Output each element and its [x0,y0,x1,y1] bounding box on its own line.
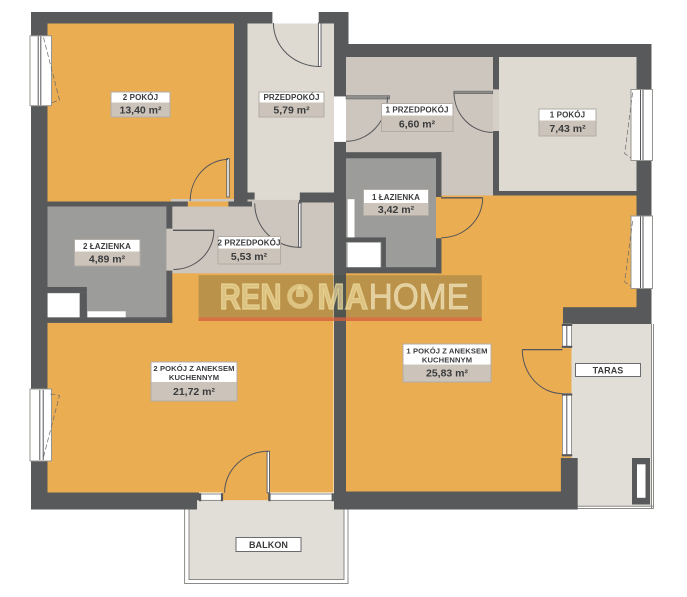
svg-text:TARAS: TARAS [593,366,624,376]
svg-text:BALKON: BALKON [249,540,288,550]
svg-text:2 ŁAZIENKA: 2 ŁAZIENKA [83,242,131,251]
svg-text:1 POKÓJ Z ANEKSEM: 1 POKÓJ Z ANEKSEM [406,347,487,356]
svg-text:7,43 m²: 7,43 m² [549,123,586,135]
svg-text:5,79 m²: 5,79 m² [273,105,310,117]
svg-text:KUCHENNYM: KUCHENNYM [169,373,219,382]
svg-text:1 ŁAZIENKA: 1 ŁAZIENKA [372,193,420,202]
svg-text:1 PRZEDPOKÓJ: 1 PRZEDPOKÓJ [386,106,449,115]
svg-text:2 POKÓJ: 2 POKÓJ [123,93,158,102]
svg-text:25,83 m²: 25,83 m² [426,368,469,380]
svg-text:13,40 m²: 13,40 m² [119,105,162,117]
svg-text:MA: MA [317,278,368,318]
svg-text:3,42 m²: 3,42 m² [378,204,415,216]
svg-text:2 POKÓJ Z ANEKSEM: 2 POKÓJ Z ANEKSEM [153,364,234,373]
svg-text:4,89 m²: 4,89 m² [89,254,126,266]
svg-text:1 POKÓJ: 1 POKÓJ [550,111,585,120]
svg-text:21,72 m²: 21,72 m² [173,386,216,398]
svg-text:REN: REN [220,276,282,317]
svg-text:6,60 m²: 6,60 m² [399,119,436,131]
svg-text:2 PRZEDPOKÓJ: 2 PRZEDPOKÓJ [218,239,281,248]
svg-text:PRZEDPOKÓJ: PRZEDPOKÓJ [263,93,319,102]
svg-text:KUCHENNYM: KUCHENNYM [422,356,472,365]
svg-text:HOME: HOME [369,278,469,317]
svg-text:5,53 m²: 5,53 m² [231,251,268,263]
